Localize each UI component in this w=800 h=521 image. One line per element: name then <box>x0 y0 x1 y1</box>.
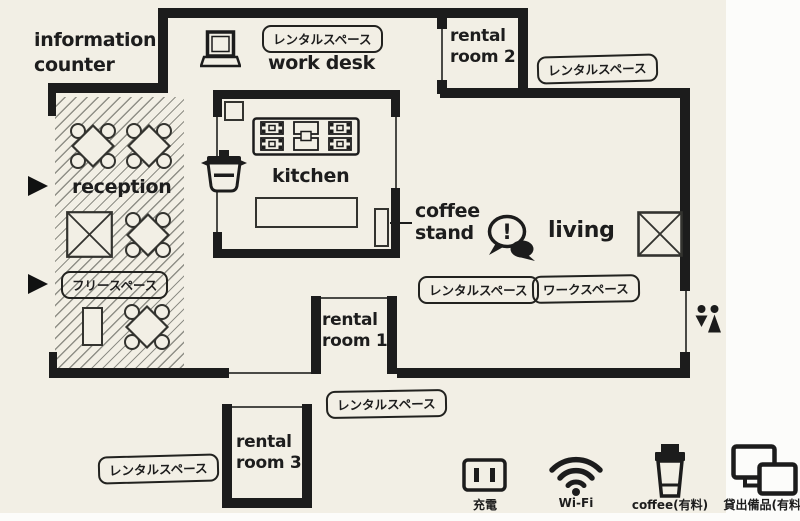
tag-rental-space-living: レンタルスペース <box>418 276 539 304</box>
rental-room-1-label: rental room 1 <box>322 310 387 353</box>
rental-room-2-line1: rental <box>450 26 515 47</box>
door-line-right <box>685 291 687 353</box>
cooking-pot-icon <box>201 150 247 194</box>
wall-topright-bottom <box>440 88 690 98</box>
information-counter-label: information counter <box>34 28 156 77</box>
wifi-icon <box>548 453 604 496</box>
bubble-exclamation: ! <box>502 220 512 244</box>
wall-right-upper <box>680 88 690 291</box>
table-with-chairs <box>125 122 173 170</box>
work-desk-label: work desk <box>268 51 375 76</box>
entrance-arrow-icon <box>28 274 48 294</box>
rental-room-2-label: rental room 2 <box>450 26 515 69</box>
rental-room-1-left-wall <box>311 296 321 374</box>
wall-right-lower-corner <box>680 352 690 378</box>
coffee-stand-counter <box>374 208 389 247</box>
rental-room-2-door-line <box>441 20 443 86</box>
legend-equipment-label: 貸出備品(有料) <box>720 496 800 513</box>
tag-rental-space-workdesk: レンタルスペース <box>262 25 383 53</box>
rental-room-3-line2: room 3 <box>236 453 301 474</box>
coffee-stand-label: coffee stand <box>415 201 480 245</box>
crossed-box-icon <box>637 211 683 257</box>
kitchen-door-line-right <box>395 117 397 188</box>
tag-work-space: ワークスペース <box>532 274 640 304</box>
rental-room-1-right-wall <box>387 296 397 374</box>
table-with-chairs <box>123 303 171 351</box>
coffee-stand-line2: stand <box>415 223 480 245</box>
tag-rental-space-room3: レンタルスペース <box>98 453 219 484</box>
rental-room-2-door-tick-bottom <box>437 80 447 94</box>
legend-wifi-label: Wi-Fi <box>548 496 604 510</box>
coffee-stand-line1: coffee <box>415 201 480 223</box>
stove-icon <box>252 117 360 156</box>
rental-room-1-door-line <box>321 297 387 299</box>
entrance-arrow-icon <box>28 176 48 196</box>
kitchen-wall-bottom <box>213 249 400 258</box>
kitchen-label: kitchen <box>272 164 349 189</box>
kitchen-cabinet <box>224 101 244 121</box>
rental-room-3-right-wall <box>302 404 312 508</box>
wall-bottom-right <box>397 368 690 378</box>
wall-bottom-left <box>49 368 229 378</box>
rental-room-3-left-wall <box>222 404 232 508</box>
coffee-stand-pointer-line <box>390 222 412 224</box>
restroom-icon <box>695 305 721 339</box>
rental-room-3-line1: rental <box>236 432 301 453</box>
coffee-cup-icon <box>651 444 689 498</box>
power-outlet-icon <box>462 458 507 492</box>
kitchen-wall-top <box>213 90 400 99</box>
door-line-bottom <box>229 372 312 374</box>
information-counter-line1: information <box>34 28 156 53</box>
laptop-icon <box>200 30 241 68</box>
tag-free-space: フリースペース <box>61 271 168 299</box>
floor-plan: information counter work desk reception … <box>0 0 800 521</box>
tag-rental-space-room1: レンタルスペース <box>326 389 447 419</box>
wall-top <box>158 8 527 18</box>
rental-room-3-label: rental room 3 <box>236 432 301 475</box>
table-with-chairs <box>69 122 117 170</box>
speech-bubble-icon: ! <box>486 214 536 262</box>
kitchen-counter <box>255 197 358 228</box>
rental-room-1-line2: room 1 <box>322 331 387 352</box>
tag-rental-space-room2: レンタルスペース <box>537 53 658 84</box>
table-with-chairs <box>124 211 172 259</box>
bench-table <box>82 307 103 346</box>
kitchen-wall-topleft <box>213 90 222 117</box>
information-counter-line2: counter <box>34 53 156 78</box>
wall-reception-left-stub <box>48 83 56 116</box>
rental-devices-icon <box>731 444 798 496</box>
wall-reception-top <box>48 83 168 93</box>
legend-charge-label: 充電 <box>455 496 515 513</box>
kitchen-wall-topright <box>391 90 400 117</box>
reception-label: reception <box>72 175 171 200</box>
living-label: living <box>548 218 615 243</box>
rental-room-3-bottom-wall <box>222 498 312 508</box>
rental-room-2-right-wall <box>518 8 528 98</box>
wall-top-left-vertical <box>158 8 168 93</box>
legend-coffee-label: coffee(有料) <box>622 496 718 513</box>
rental-room-2-door-tick-top <box>437 16 447 29</box>
rental-room-3-door-line <box>232 406 302 408</box>
rental-room-1-line1: rental <box>322 310 387 331</box>
rental-room-2-line2: room 2 <box>450 47 515 68</box>
crossed-table <box>66 211 113 258</box>
